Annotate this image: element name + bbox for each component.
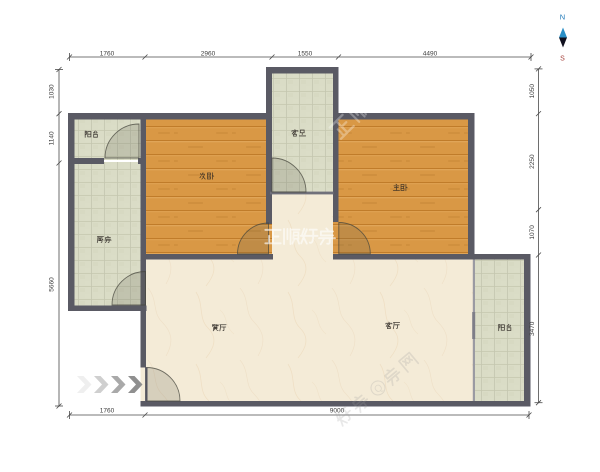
- svg-text:5660: 5660: [49, 277, 56, 292]
- svg-text:1760: 1760: [100, 50, 115, 57]
- svg-text:3470: 3470: [529, 321, 536, 336]
- svg-text:1140: 1140: [49, 131, 56, 145]
- svg-text:1030: 1030: [49, 84, 56, 99]
- svg-text:S: S: [560, 56, 565, 63]
- svg-text:N: N: [560, 13, 565, 22]
- svg-text:2960: 2960: [201, 50, 216, 57]
- svg-text:1050: 1050: [529, 84, 536, 99]
- svg-text:1760: 1760: [100, 407, 115, 414]
- svg-text:4490: 4490: [423, 50, 438, 57]
- svg-text:2250: 2250: [529, 154, 536, 169]
- svg-text:1070: 1070: [529, 225, 536, 240]
- svg-text:1550: 1550: [298, 50, 313, 57]
